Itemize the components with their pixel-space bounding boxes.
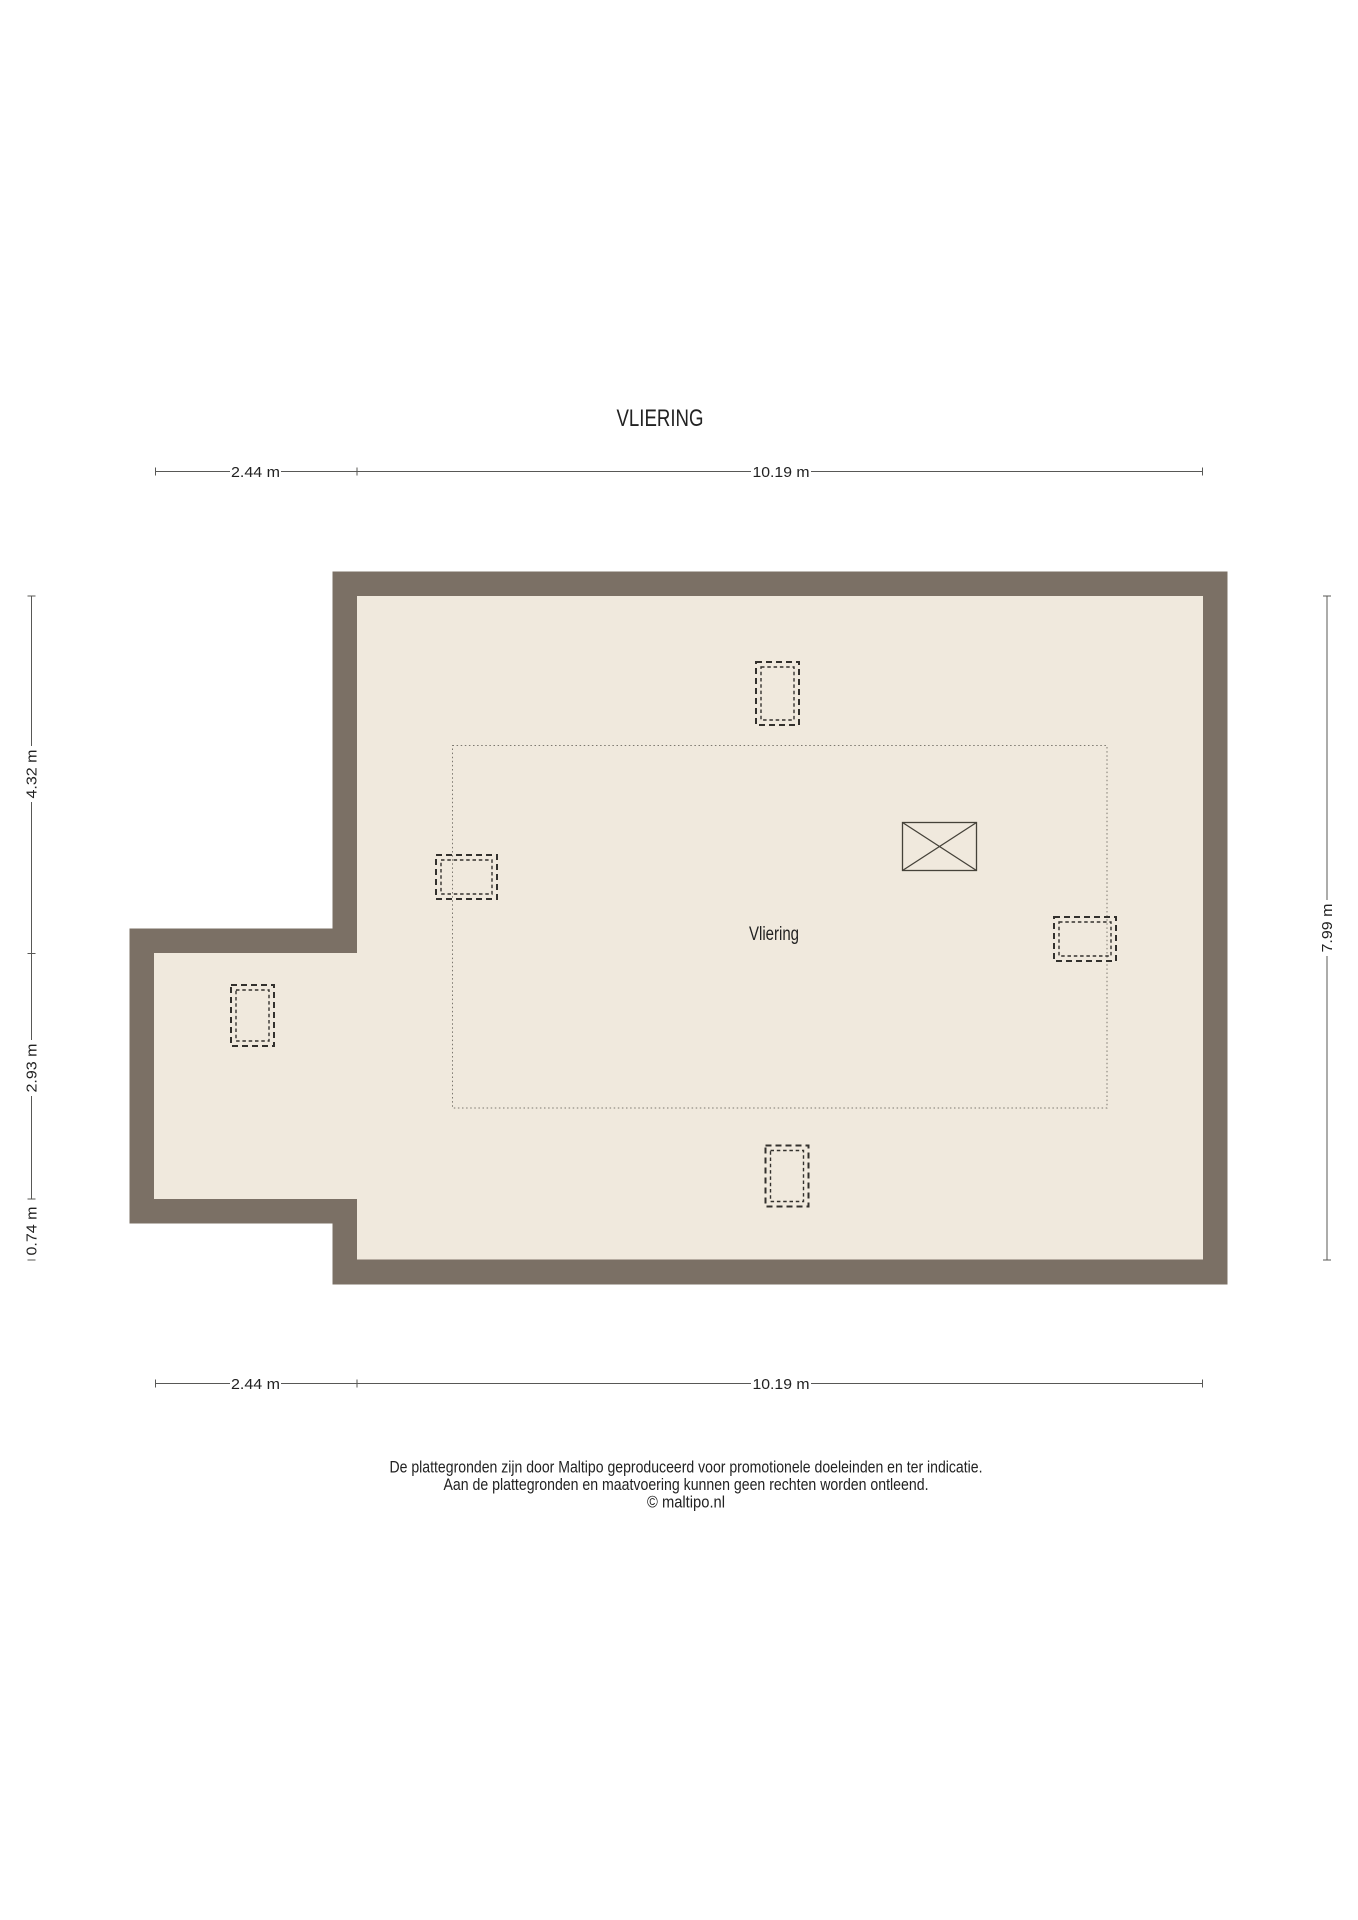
svg-text:VLIERING: VLIERING [617,405,704,432]
svg-text:0.74 m: 0.74 m [24,1207,41,1256]
svg-text:2.93 m: 2.93 m [24,1044,41,1093]
svg-text:10.19 m: 10.19 m [753,464,810,481]
svg-text:10.19 m: 10.19 m [753,1376,810,1393]
svg-text:2.44 m: 2.44 m [231,1376,280,1393]
svg-text:De plattegronden zijn door Mal: De plattegronden zijn door Maltipo gepro… [390,1459,983,1477]
svg-text:4.32 m: 4.32 m [24,750,41,799]
svg-text:© maltipo.nl: © maltipo.nl [647,1494,725,1512]
svg-text:Vliering: Vliering [749,924,799,945]
svg-text:Aan de plattegronden en maatvo: Aan de plattegronden en maatvoering kunn… [444,1476,929,1494]
svg-text:2.44 m: 2.44 m [231,464,280,481]
svg-text:7.99 m: 7.99 m [1319,904,1336,953]
